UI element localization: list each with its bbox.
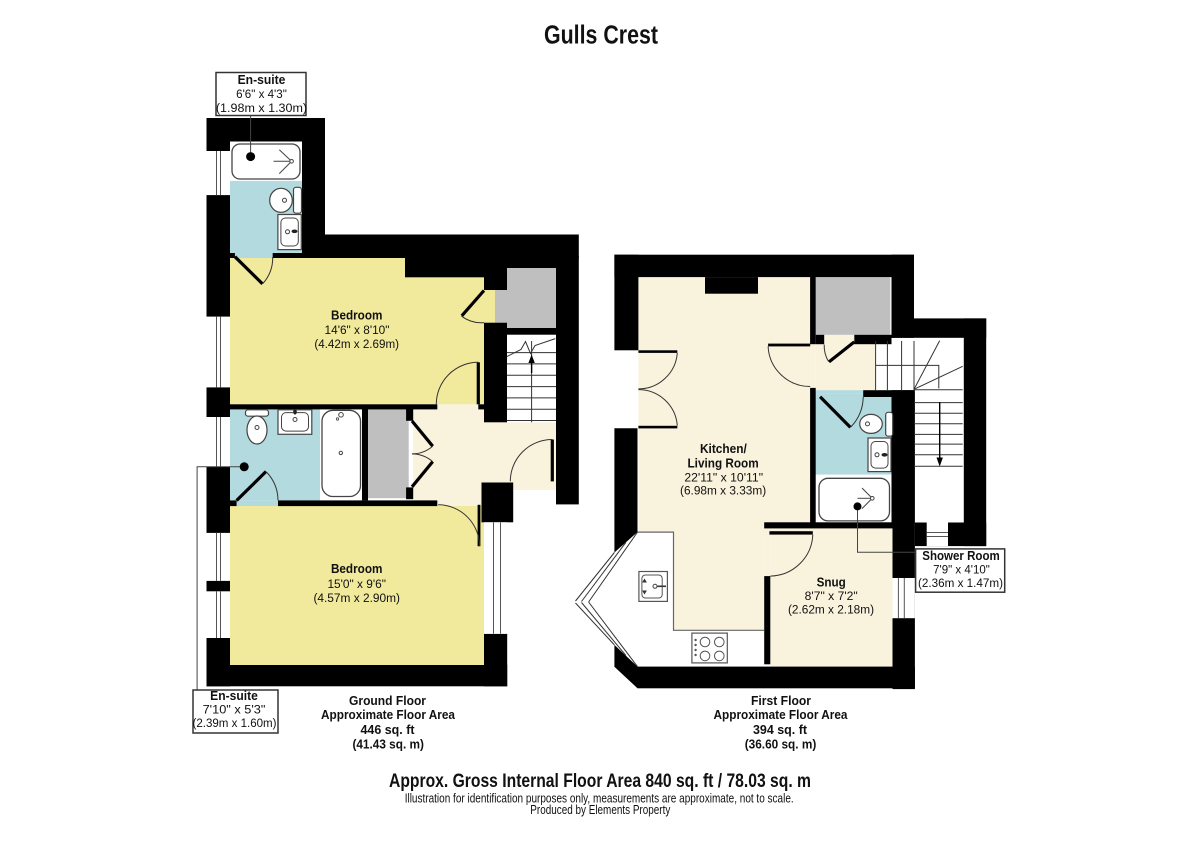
svg-text:Kitchen/: Kitchen/	[700, 441, 747, 456]
svg-text:15'0" x 9'6": 15'0" x 9'6"	[327, 577, 386, 591]
svg-text:(4.42m x 2.69m): (4.42m x 2.69m)	[314, 337, 399, 351]
svg-text:Produced by Elements Property: Produced by Elements Property	[530, 802, 670, 817]
svg-text:Living Room: Living Room	[688, 455, 759, 470]
svg-text:En-suite: En-suite	[210, 688, 258, 703]
svg-text:Bedroom: Bedroom	[331, 308, 382, 323]
svg-text:6'6" x 4'3": 6'6" x 4'3"	[236, 87, 287, 101]
svg-text:Ground Floor: Ground Floor	[349, 694, 426, 708]
svg-text:394 sq. ft: 394 sq. ft	[753, 723, 808, 737]
svg-text:Approx. Gross Internal Floor A: Approx. Gross Internal Floor Area 840 sq…	[389, 771, 811, 792]
svg-text:En-suite: En-suite	[238, 72, 286, 87]
svg-text:446 sq. ft: 446 sq. ft	[361, 723, 416, 737]
svg-text:14'6" x 8'10": 14'6" x 8'10"	[325, 323, 390, 337]
svg-text:(2.36m x 1.47m): (2.36m x 1.47m)	[918, 576, 1003, 590]
svg-text:Bedroom: Bedroom	[331, 561, 383, 576]
svg-text:(2.39m x 1.60m): (2.39m x 1.60m)	[193, 716, 277, 730]
svg-text:22'11" x 10'11": 22'11" x 10'11"	[684, 470, 763, 484]
svg-text:7'9" x 4'10": 7'9" x 4'10"	[933, 562, 990, 576]
svg-text:8'7" x 7'2": 8'7" x 7'2"	[805, 589, 858, 603]
svg-text:Approximate Floor Area: Approximate Floor Area	[321, 708, 456, 722]
svg-text:(2.62m x 2.18m): (2.62m x 2.18m)	[788, 603, 874, 617]
svg-text:(4.57m x 2.90m): (4.57m x 2.90m)	[313, 591, 400, 605]
svg-text:7'10" x 5'3": 7'10" x 5'3"	[203, 702, 266, 716]
svg-text:Approximate Floor Area: Approximate Floor Area	[714, 708, 849, 722]
svg-text:(36.60 sq. m): (36.60 sq. m)	[745, 738, 817, 752]
svg-text:(6.98m x 3.33m): (6.98m x 3.33m)	[680, 484, 766, 498]
svg-text:Snug: Snug	[817, 574, 846, 589]
svg-text:Shower Room: Shower Room	[922, 548, 1000, 563]
svg-text:First Floor: First Floor	[751, 694, 811, 708]
svg-text:(41.43 sq. m): (41.43 sq. m)	[352, 738, 424, 752]
svg-text:Gulls Crest: Gulls Crest	[544, 21, 658, 49]
svg-text:(1.98m x 1.30m): (1.98m x 1.30m)	[216, 101, 307, 115]
